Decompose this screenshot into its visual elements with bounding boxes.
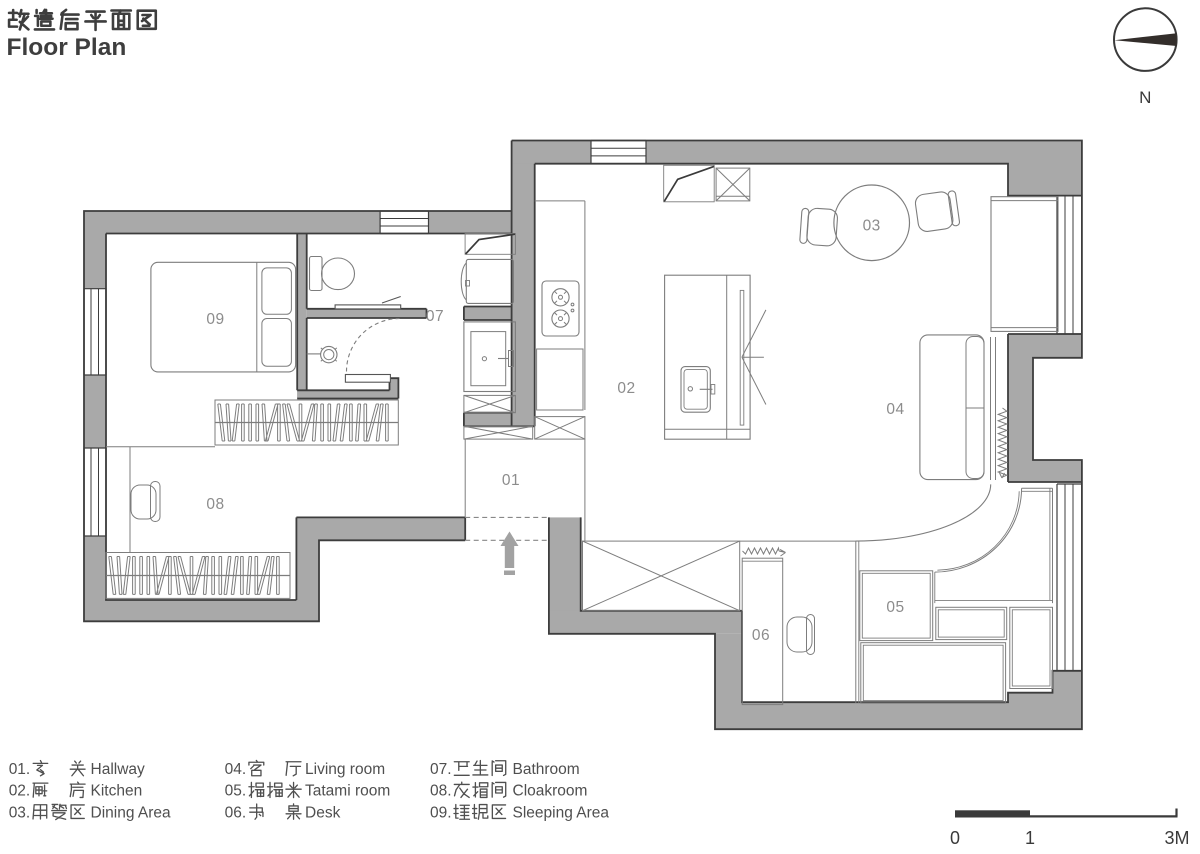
svg-text:08.: 08. (430, 783, 452, 800)
svg-text:Desk: Desk (305, 804, 341, 821)
svg-text:05: 05 (886, 599, 904, 616)
svg-text:04: 04 (886, 401, 904, 418)
svg-text:01: 01 (502, 472, 520, 489)
svg-text:0: 0 (950, 828, 960, 848)
svg-text:01.: 01. (9, 761, 31, 778)
svg-text:Tatami room: Tatami room (305, 783, 390, 800)
svg-text:02.: 02. (9, 783, 31, 800)
svg-text:06.: 06. (225, 804, 247, 821)
svg-text:Sleeping Area: Sleeping Area (513, 804, 610, 821)
svg-text:N: N (1139, 88, 1151, 107)
svg-text:09: 09 (206, 311, 224, 328)
svg-text:06: 06 (752, 627, 770, 644)
svg-text:1: 1 (1025, 828, 1035, 848)
svg-text:02: 02 (617, 380, 635, 397)
svg-text:07.: 07. (430, 761, 452, 778)
svg-text:07: 07 (426, 308, 444, 325)
svg-text:04.: 04. (225, 761, 247, 778)
svg-text:Living room: Living room (305, 761, 385, 778)
svg-text:Bathroom: Bathroom (513, 761, 580, 778)
svg-text:Floor Plan: Floor Plan (7, 34, 127, 61)
svg-text:3M: 3M (1164, 828, 1189, 848)
svg-text:Dining Area: Dining Area (91, 804, 172, 821)
svg-text:Cloakroom: Cloakroom (513, 783, 588, 800)
svg-text:09.: 09. (430, 804, 452, 821)
svg-text:Hallway: Hallway (91, 761, 146, 778)
svg-text:03.: 03. (9, 804, 31, 821)
svg-text:08: 08 (206, 496, 224, 513)
svg-text:03: 03 (863, 218, 881, 235)
svg-text:Kitchen: Kitchen (91, 783, 143, 800)
svg-text:05.: 05. (225, 783, 247, 800)
